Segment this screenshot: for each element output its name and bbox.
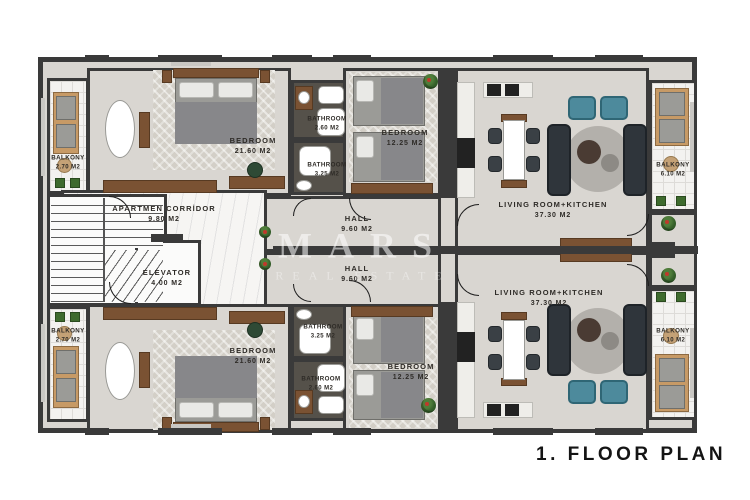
window-segment [690, 102, 694, 172]
armchair-icon [568, 96, 596, 120]
room-area: 2.70 m2 [51, 336, 84, 345]
sink-icon [298, 91, 310, 104]
window-segment [171, 62, 211, 66]
room-name: LIVING ROOM+KITCHEN [498, 200, 607, 209]
sofa-icon [547, 304, 571, 376]
window-tab [158, 428, 222, 435]
table-end-icon [501, 180, 527, 188]
stair-flight-icon [51, 198, 103, 302]
planter-icon [676, 196, 686, 206]
room-area: 12.25 m2 [388, 372, 435, 383]
cushion-icon [659, 385, 685, 409]
planter-icon [656, 292, 666, 302]
label-living-top: LIVING ROOM+KITCHEN 37.30 m2 [498, 199, 607, 221]
plant-icon [423, 74, 438, 89]
room-name: ELEVATOR [143, 268, 191, 277]
pillow-icon [179, 402, 214, 418]
label-balcony-left-bottom: BALKONY 2.70 m2 [51, 327, 84, 346]
sofa-icon [547, 124, 571, 196]
label-living-bottom: LIVING ROOM+KITCHEN 37.30 m2 [494, 287, 603, 309]
dining-chair-icon [488, 326, 502, 342]
page-title: 1. FLOOR PLAN [536, 444, 736, 466]
pillow-icon [179, 82, 214, 98]
dining-chair-icon [526, 128, 540, 144]
cooktop-icon [457, 138, 475, 168]
window-tab [595, 55, 643, 62]
window-segment [171, 424, 211, 428]
pillow-icon [356, 374, 374, 396]
room-area: 6.10 m2 [656, 170, 689, 179]
coffee-table-icon [577, 318, 601, 342]
window-tab [493, 428, 553, 435]
planter-icon [70, 178, 80, 188]
window-tab [272, 55, 312, 62]
wall-hall-living-top [441, 68, 455, 198]
room-area: 2.70 m2 [51, 163, 84, 172]
dining-chair-icon [526, 156, 540, 172]
nightstand-icon [162, 70, 172, 83]
window-segment [690, 328, 694, 398]
room-name: BALKONY [51, 328, 84, 335]
room-area: 21.60 m2 [230, 146, 277, 157]
toilet-icon [296, 180, 312, 191]
label-bedroom-small-top: BEDROOM 12.25 m2 [382, 127, 429, 149]
room-name: BATHROOM [307, 162, 346, 169]
label-bathroom-large-bottom: BATHROOM 3.25 m2 [303, 323, 342, 342]
planter-icon [55, 312, 65, 322]
plant-icon [259, 226, 271, 238]
stair-divider [103, 198, 105, 302]
room-area: 9.60 m2 [341, 224, 373, 235]
label-balcony-left-top: BALKONY 2.70 m2 [51, 154, 84, 173]
chaise-icon [105, 100, 135, 158]
planter-icon [55, 178, 65, 188]
cooktop-icon [457, 332, 475, 362]
sofa-icon [623, 304, 647, 376]
dining-chair-icon [488, 354, 502, 370]
cushion-icon [659, 358, 685, 382]
sideboard-icon [351, 306, 433, 317]
cushion-icon [56, 350, 76, 374]
room-name: BALKONY [656, 328, 689, 335]
plant-icon [661, 268, 676, 283]
room-name: BEDROOM [230, 136, 277, 145]
window-tab [333, 55, 371, 62]
room-area: 21.60 m2 [230, 356, 277, 367]
cushion-icon [659, 92, 685, 116]
room-area: 37.30 m2 [498, 210, 607, 221]
sideboard-icon [103, 180, 217, 193]
dining-chair-icon [488, 128, 502, 144]
round-rug-icon [565, 308, 631, 374]
nightstand-icon [260, 70, 270, 83]
room-name: BATHROOM [301, 376, 340, 383]
window-segment [41, 324, 45, 402]
side-table-icon [139, 352, 150, 388]
label-hall-bottom: HALL 9.60 m2 [341, 263, 373, 285]
desk-chair-icon [247, 322, 263, 338]
room-area: 3.25 m2 [307, 170, 346, 179]
plant-icon [661, 216, 676, 231]
window-tab [272, 428, 312, 435]
label-bathroom-small-bottom: BATHROOM 2.60 m2 [301, 375, 340, 394]
room-name: BATHROOM [303, 324, 342, 331]
washbasin-icon [318, 86, 344, 104]
cushion-icon [56, 96, 76, 120]
nightstand-icon [260, 417, 270, 430]
label-bathroom-large-top: BATHROOM 3.25 m2 [307, 161, 346, 180]
pillow-icon [356, 136, 374, 158]
cushion-icon [56, 378, 76, 402]
room-area: 9.80 m2 [112, 214, 216, 225]
dining-chair-icon [526, 326, 540, 342]
label-corridor: APARTMEN CORRİDOR 9.80 m2 [112, 203, 216, 225]
window-tab [595, 428, 643, 435]
sideboard-icon [351, 183, 433, 194]
window-tab [85, 55, 109, 62]
room-area: 9.60 m2 [341, 274, 373, 285]
room-area: 2.60 m2 [307, 124, 346, 133]
kitchen-sink-icon [505, 84, 519, 96]
room-area: 3.25 m2 [303, 332, 342, 341]
blanket-icon [381, 78, 423, 124]
room-area: 4.00 m2 [143, 278, 191, 289]
room-name: BEDROOM [388, 362, 435, 371]
room-name: HALL [345, 214, 369, 223]
dining-table-icon [503, 120, 525, 180]
side-table-icon [139, 112, 150, 148]
dining-chair-icon [526, 354, 540, 370]
window-tab [85, 428, 109, 435]
desk-chair-icon [247, 162, 263, 178]
room-area: 37.30 m2 [494, 298, 603, 309]
kitchen-sink-icon [505, 404, 519, 416]
elevator-door-block [151, 234, 183, 242]
window-segment [41, 98, 45, 176]
armchair-icon [600, 380, 628, 404]
kitchen-sink-icon [487, 84, 501, 96]
room-name: BATHROOM [307, 116, 346, 123]
toilet-icon [296, 309, 312, 320]
label-elevator: ELEVATOR 4.00 m2 [143, 267, 191, 289]
floor-plan: APARTMEN CORRİDOR 9.80 m2 ELEVATOR 4.00 … [38, 57, 697, 433]
plant-icon [259, 258, 271, 270]
room-area: 6.10 m2 [656, 336, 689, 345]
pillow-icon [356, 318, 374, 340]
room-area: 12.25 m2 [382, 138, 429, 149]
planter-icon [676, 292, 686, 302]
room-name: BEDROOM [230, 346, 277, 355]
dining-chair-icon [488, 156, 502, 172]
planter-icon [656, 196, 666, 206]
armchair-icon [568, 380, 596, 404]
desk-icon [229, 176, 285, 189]
pillow-icon [356, 80, 374, 102]
floor-plan-page: APARTMEN CORRİDOR 9.80 m2 ELEVATOR 4.00 … [0, 0, 750, 500]
sofa-icon [623, 124, 647, 196]
coffee-table-icon [601, 332, 619, 350]
label-balcony-right-top: BALKONY 6.10 m2 [656, 161, 689, 180]
bed-headboard-icon [173, 68, 259, 78]
blanket-icon [381, 316, 423, 362]
sideboard-icon [103, 307, 217, 320]
window-tab [158, 55, 222, 62]
pillow-icon [218, 82, 253, 98]
room-name: LIVING ROOM+KITCHEN [494, 288, 603, 297]
room-name: BALKONY [656, 162, 689, 169]
label-bathroom-small-top: BATHROOM 2.60 m2 [307, 115, 346, 134]
center-party-wall [273, 246, 698, 254]
label-bedroom-master-bottom: BEDROOM 21.60 m2 [230, 345, 277, 367]
room-name: APARTMEN CORRİDOR [112, 204, 216, 213]
window-tab [493, 55, 553, 62]
room-area: 2.60 m2 [301, 384, 340, 393]
sink-icon [298, 395, 310, 408]
table-end-icon [501, 312, 527, 320]
armchair-icon [600, 96, 628, 120]
room-name: BEDROOM [382, 128, 429, 137]
label-bedroom-master-top: BEDROOM 21.60 m2 [230, 135, 277, 157]
chaise-icon [105, 342, 135, 400]
label-bedroom-small-bottom: BEDROOM 12.25 m2 [388, 361, 435, 383]
right-wall-block [647, 242, 675, 258]
kitchen-sink-icon [487, 404, 501, 416]
room-name: HALL [345, 264, 369, 273]
cushion-icon [56, 124, 76, 148]
dining-table-icon [503, 320, 525, 380]
washbasin-icon [318, 396, 344, 414]
pillow-icon [218, 402, 253, 418]
planter-icon [70, 312, 80, 322]
coffee-table-icon [577, 140, 601, 164]
label-balcony-right-bottom: BALKONY 6.10 m2 [656, 327, 689, 346]
wall-hall-living-bottom [441, 302, 455, 432]
coffee-table-icon [601, 154, 619, 172]
plant-icon [421, 398, 436, 413]
label-hall-top: HALL 9.60 m2 [341, 213, 373, 235]
window-tab [333, 428, 371, 435]
cushion-icon [659, 119, 685, 143]
room-name: BALKONY [51, 155, 84, 162]
